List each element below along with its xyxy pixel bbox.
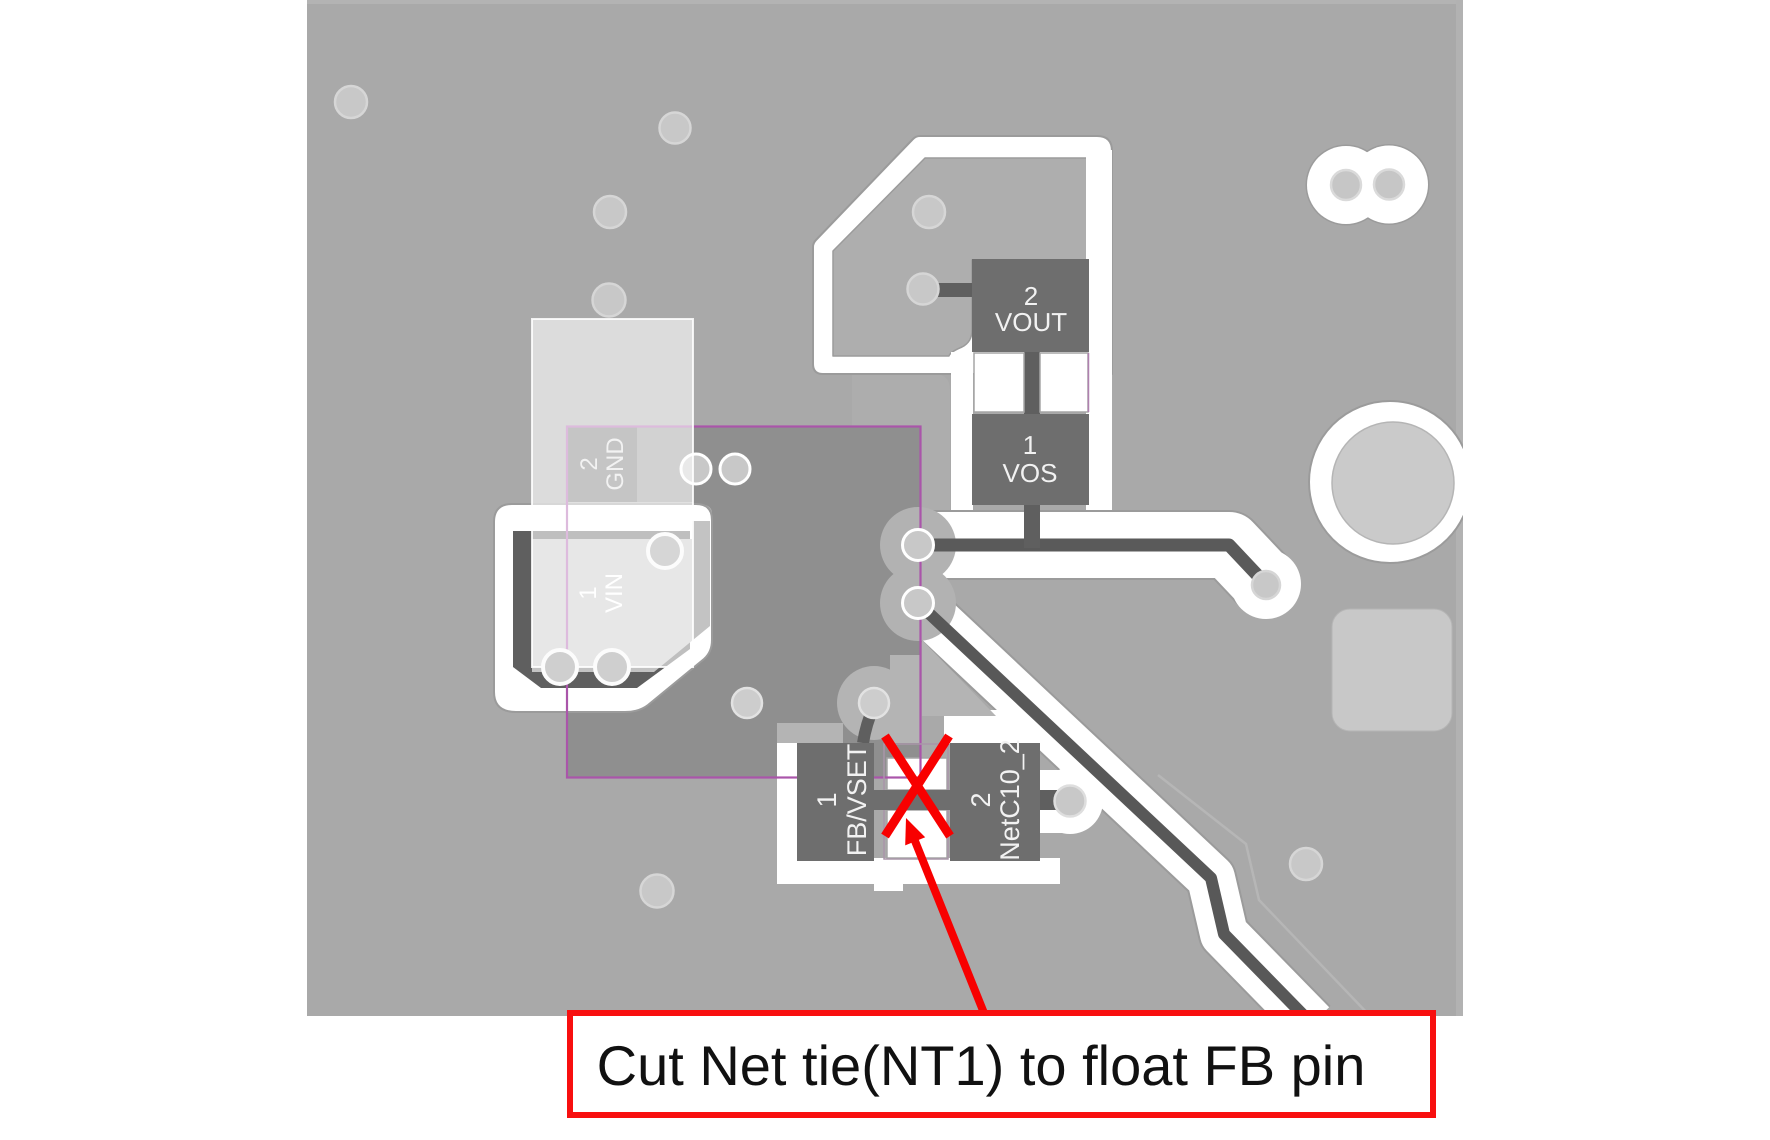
svg-text:NetC10_2: NetC10_2: [995, 739, 1025, 861]
svg-text:VOS: VOS: [1003, 458, 1058, 488]
svg-text:VOUT: VOUT: [995, 307, 1067, 337]
svg-text:VIN: VIN: [601, 573, 628, 613]
svg-text:1: 1: [575, 586, 602, 599]
svg-text:1: 1: [812, 792, 842, 807]
svg-text:GND: GND: [602, 437, 629, 490]
svg-text:FB/VSET: FB/VSET: [842, 744, 872, 857]
svg-text:1: 1: [1023, 430, 1037, 460]
svg-text:2: 2: [966, 792, 996, 807]
svg-text:Cut Net tie(NT1) to float FB p: Cut Net tie(NT1) to float FB pin: [597, 1034, 1366, 1097]
svg-text:2: 2: [576, 457, 603, 470]
